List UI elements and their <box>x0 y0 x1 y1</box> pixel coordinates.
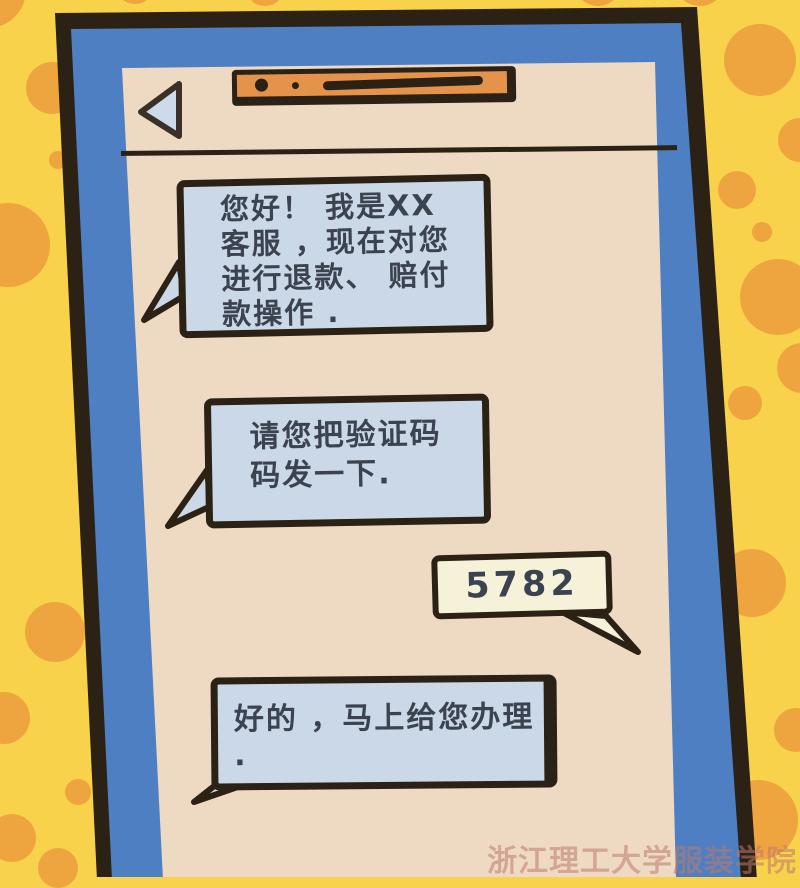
message-line: 客服 ，现在对您 <box>220 222 479 262</box>
message-line: 5782 <box>465 563 579 606</box>
back-arrow-icon <box>134 79 186 141</box>
camera-icon <box>255 78 268 91</box>
message-bubble-incoming: 好的 ，马上给您办理 . <box>211 674 558 790</box>
chat-screen: 您好！ 我是XX 客服 ，现在对您 进行退款、 赔付 款操作 . 请您把验证码 … <box>0 0 800 877</box>
message-line: 请您把验证码 <box>249 414 477 457</box>
message-line: 好的 ，马上给您办理 . <box>234 692 545 774</box>
watermark-text: 浙江理工大学服装学院 <box>487 836 797 880</box>
message-bubble-incoming: 您好！ 我是XX 客服 ，现在对您 进行退款、 赔付 款操作 . <box>176 174 493 339</box>
message-bubble-outgoing: 5782 <box>431 550 613 619</box>
sensor-dot-icon <box>292 82 299 89</box>
message-line: 您好！ 我是XX <box>220 187 479 227</box>
message-line: 码发一下. <box>250 453 478 496</box>
back-button[interactable] <box>134 79 186 141</box>
message-line: 款操作 . <box>222 292 481 332</box>
speaker-slit-icon <box>323 76 483 91</box>
speaker-bar <box>232 66 516 106</box>
header-divider <box>121 145 677 156</box>
message-line: 进行退款、 赔付 <box>221 257 480 297</box>
message-bubble-incoming: 请您把验证码 码发一下. <box>204 394 491 529</box>
